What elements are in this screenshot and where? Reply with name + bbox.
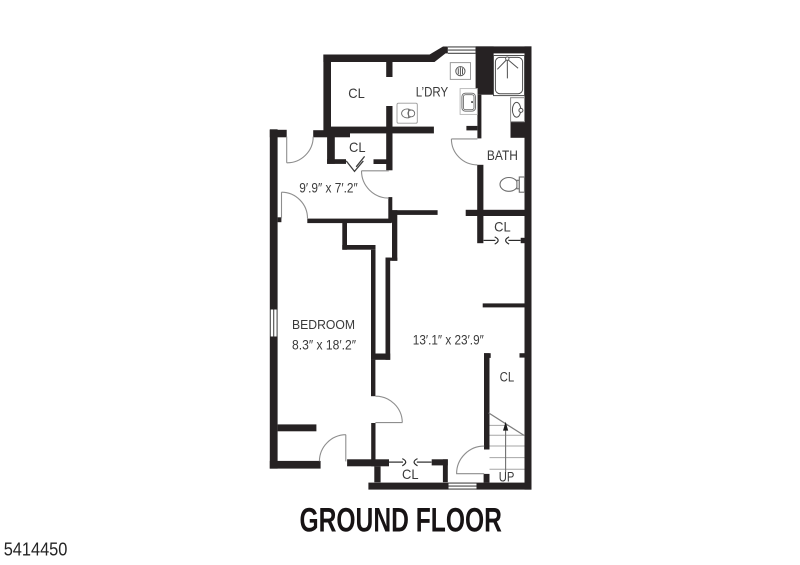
svg-text:GROUND FLOOR: GROUND FLOOR xyxy=(299,502,502,540)
svg-text:L’DRY: L’DRY xyxy=(416,84,449,100)
svg-text:9′.9″ x 7′.2″: 9′.9″ x 7′.2″ xyxy=(299,179,358,195)
svg-text:BEDROOM: BEDROOM xyxy=(292,317,355,332)
svg-text:CL: CL xyxy=(348,85,365,101)
svg-text:CL: CL xyxy=(494,219,511,235)
svg-text:CL: CL xyxy=(349,139,366,155)
svg-text:BATH: BATH xyxy=(487,148,518,163)
svg-text:CL: CL xyxy=(402,466,419,482)
svg-text:CL: CL xyxy=(500,370,515,385)
svg-text:8.3″ x 18′.2″: 8.3″ x 18′.2″ xyxy=(292,336,356,352)
svg-text:UP: UP xyxy=(499,469,515,485)
svg-text:5414450: 5414450 xyxy=(4,539,68,560)
svg-text:13′.1″ x 23′.9″: 13′.1″ x 23′.9″ xyxy=(413,332,484,348)
